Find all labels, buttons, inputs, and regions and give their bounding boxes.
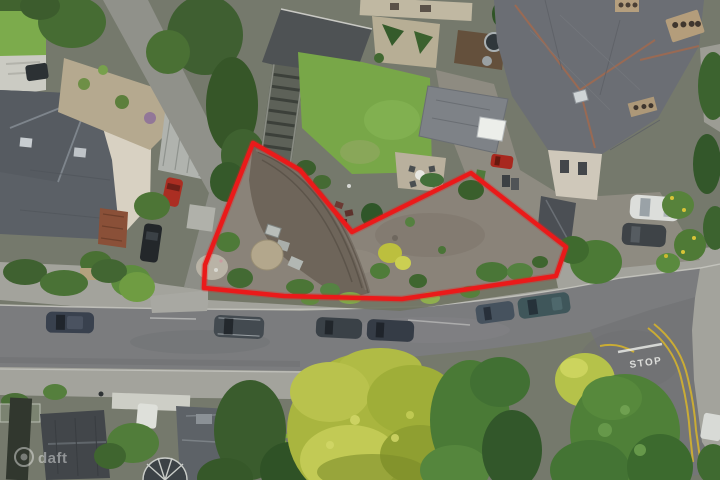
- bush: [532, 256, 548, 268]
- garden-table: [482, 56, 492, 66]
- roof-vent: [347, 184, 351, 188]
- bush: [286, 279, 314, 295]
- flower-bush-east: [662, 191, 694, 219]
- flowering-shrub: [196, 254, 228, 280]
- bush: [43, 384, 67, 400]
- parked-car-1: [46, 312, 94, 334]
- bush: [409, 274, 427, 288]
- tree: [693, 134, 720, 194]
- patio-plant: [115, 95, 129, 109]
- yellow-shrub: [395, 256, 411, 270]
- black-car-windscreen: [145, 231, 158, 241]
- patio-chair: [429, 166, 436, 173]
- dark-hedge-strip: [6, 397, 32, 480]
- small-bush: [405, 217, 415, 227]
- extension-skylight: [477, 117, 506, 141]
- yellow-flower: [664, 254, 668, 258]
- parked-car-2: [213, 315, 264, 340]
- bush: [370, 263, 390, 279]
- gravel-spot: [392, 235, 398, 241]
- bright-tree-roadside: [119, 272, 155, 302]
- parked-suv-topleft: [25, 63, 49, 82]
- yellow-flower: [681, 250, 685, 254]
- bush: [227, 268, 253, 288]
- skylight: [74, 147, 87, 157]
- window: [560, 160, 569, 173]
- hedge: [40, 270, 88, 296]
- yellow-flower: [692, 236, 696, 240]
- flower: [219, 259, 222, 262]
- centre-line-dash: [150, 318, 196, 319]
- concrete-pad: [186, 204, 215, 231]
- lawn-light-patch: [364, 100, 420, 140]
- green-tree: [470, 357, 530, 407]
- yellow-flower: [670, 196, 674, 200]
- dormer: [196, 414, 212, 424]
- parked-car-4: [366, 319, 414, 342]
- bush: [476, 262, 508, 282]
- terrace-object: [420, 5, 431, 12]
- aerial-photo-canvas: STOP: [0, 0, 720, 480]
- yellow-flower: [682, 208, 686, 212]
- dark-bin: [502, 175, 510, 187]
- patio-plant: [98, 65, 108, 75]
- parterre-bush: [374, 53, 384, 63]
- flowering-plant: [144, 112, 156, 124]
- watermark-logo-dot: [21, 454, 28, 461]
- courtyard-gravel-patio: [251, 240, 283, 270]
- grey-car-driveway: [621, 222, 666, 247]
- chimney-pot: [633, 3, 638, 8]
- parked-car-3: [316, 317, 363, 339]
- patio-plant: [78, 78, 90, 90]
- watermark-text: daft: [38, 450, 68, 467]
- window: [578, 162, 587, 175]
- lawn-worn-patch: [340, 140, 380, 164]
- aerial-photo: STOP: [0, 0, 720, 480]
- house-northeast-wall: [548, 150, 602, 200]
- flower-bush-east: [674, 229, 706, 261]
- tree: [94, 443, 126, 469]
- bush: [134, 192, 170, 220]
- terrace-object: [390, 3, 399, 10]
- flower: [214, 268, 218, 272]
- chimney-pot: [619, 3, 624, 8]
- small-bush: [438, 246, 446, 254]
- chimney-pot: [626, 3, 631, 8]
- dark-bin: [511, 178, 519, 190]
- tree: [146, 30, 190, 74]
- road-shadow: [0, 360, 300, 364]
- bird-on-pavement: [99, 392, 104, 397]
- skylight: [20, 137, 33, 147]
